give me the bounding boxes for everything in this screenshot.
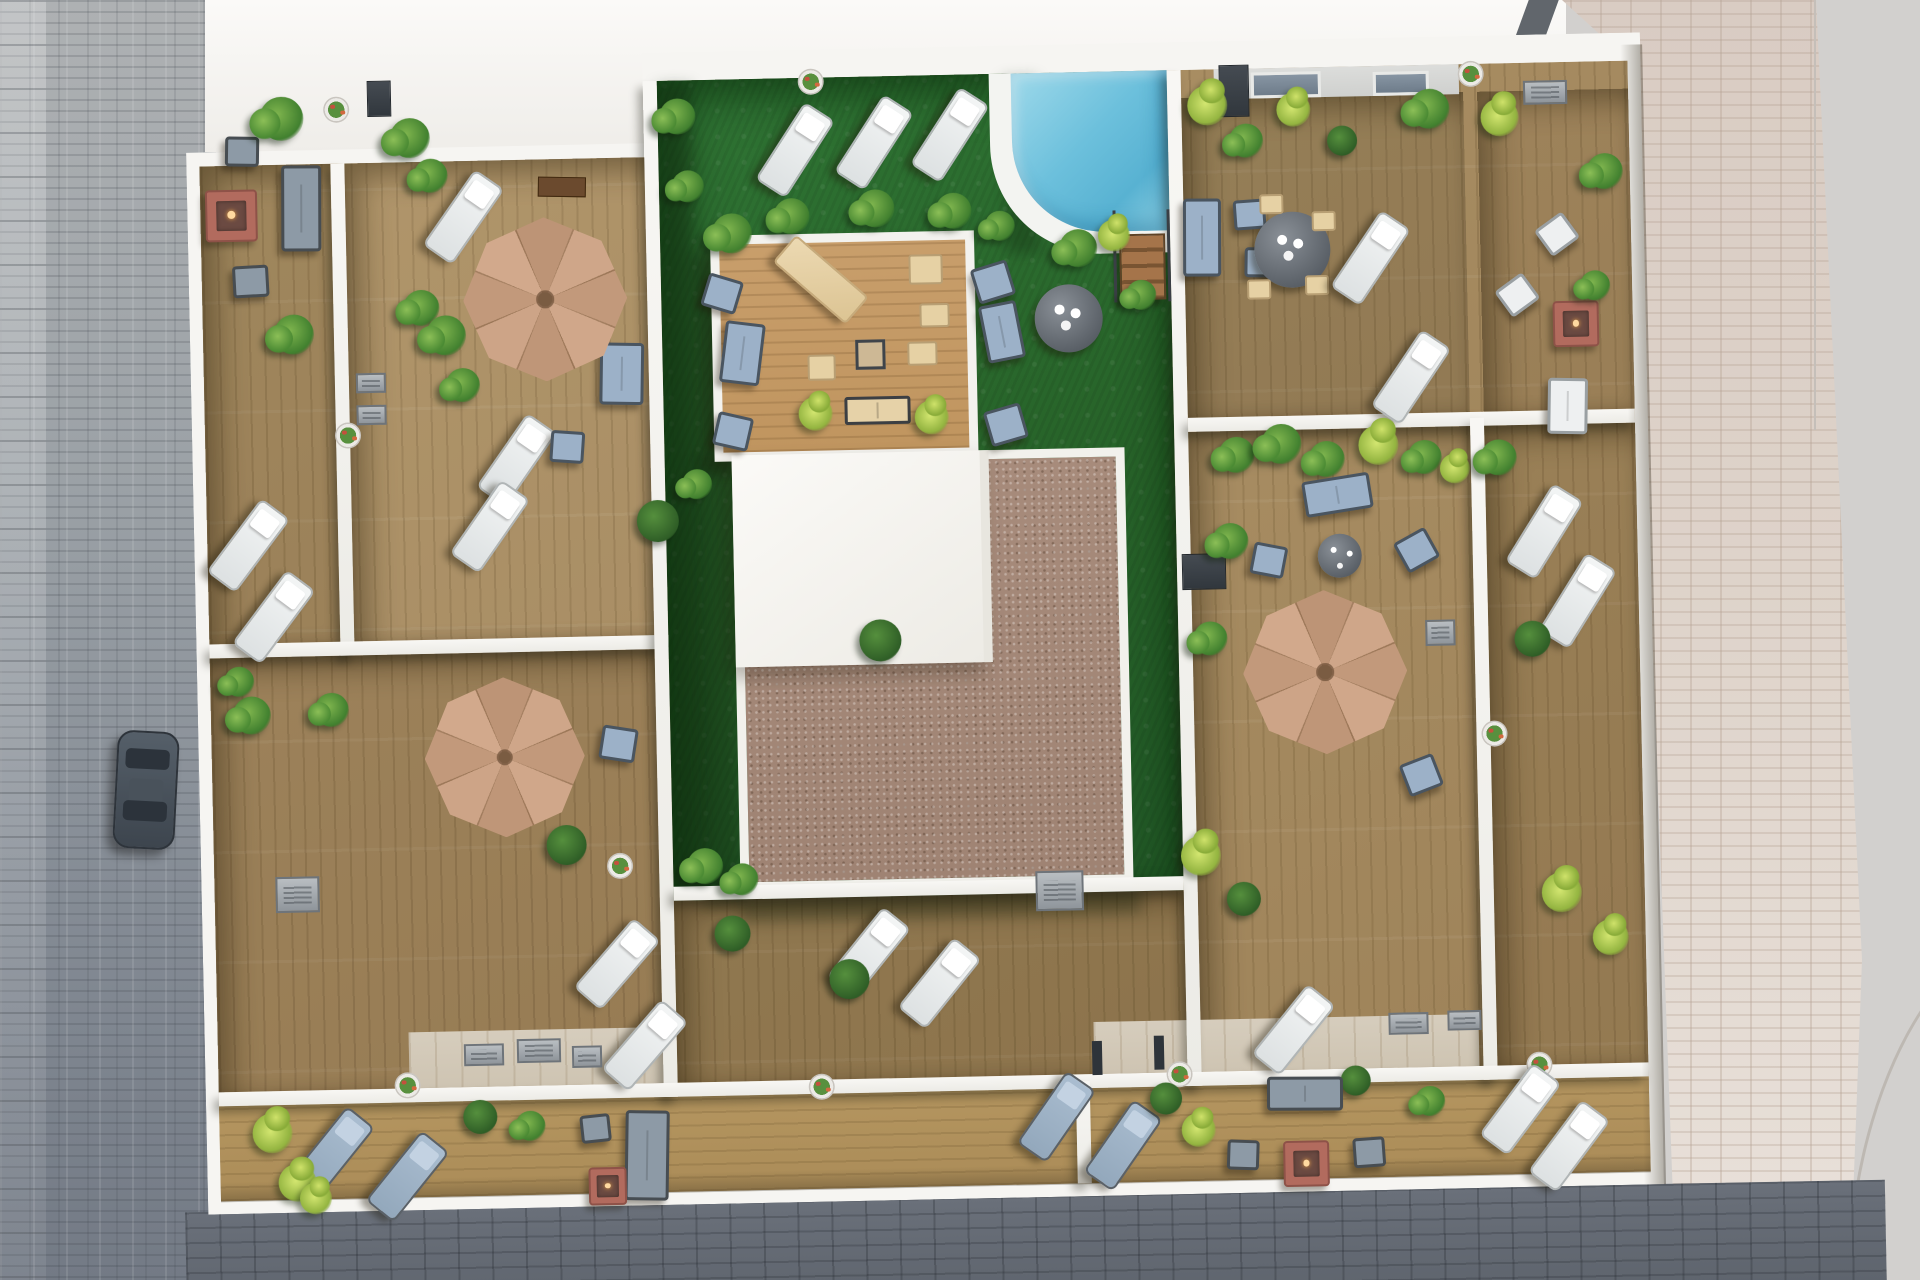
rooftop-plan-rendering — [0, 0, 1920, 1280]
street-items-layer — [0, 0, 1920, 1280]
parked-car — [112, 729, 180, 850]
